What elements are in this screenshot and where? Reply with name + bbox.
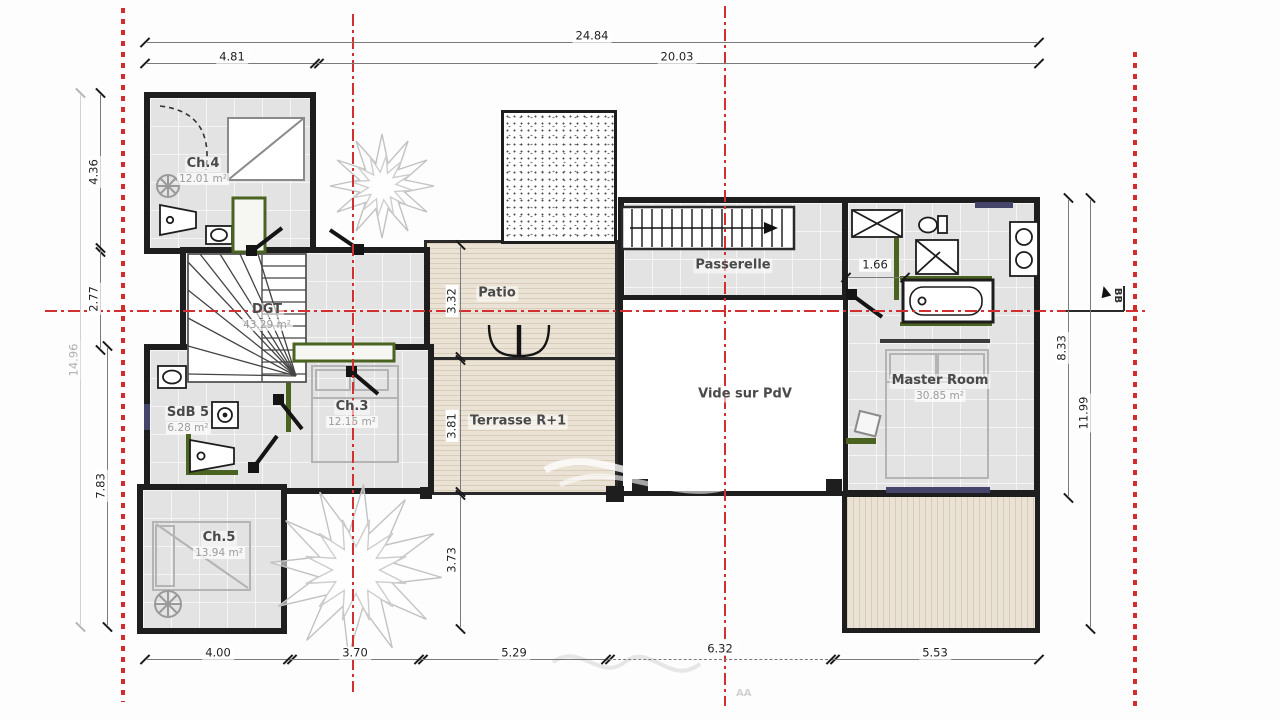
room-label-ch5: Ch.5 13.94 m² xyxy=(193,531,245,559)
partition-green xyxy=(900,276,992,280)
room-ch5-block xyxy=(137,484,287,634)
room-label-dgt: DGT 43.29 m² xyxy=(241,303,293,331)
dim-line-bath xyxy=(848,277,903,278)
section-line xyxy=(1123,286,1125,311)
window-glazing xyxy=(975,202,1013,208)
dim-right-2: 11.99 xyxy=(1078,394,1091,433)
partition-green xyxy=(186,434,191,474)
section-marker-bb: BB xyxy=(1112,288,1123,303)
room-label-patio: Patio xyxy=(476,287,518,302)
room-name: Passerelle xyxy=(693,259,772,274)
room-area: 12.15 m² xyxy=(326,416,378,428)
room-ch4-block xyxy=(144,92,316,254)
room-area: 13.94 m² xyxy=(193,547,245,559)
room-label-passerelle: Passerelle xyxy=(693,259,772,274)
dim-patio-width: 3.32 xyxy=(446,285,459,317)
right-wing-block xyxy=(842,197,1040,496)
room-area: 6.28 m² xyxy=(165,422,210,434)
room-label-terrasse: Terrasse R+1 xyxy=(468,415,568,430)
room-name: Ch.4 xyxy=(185,157,222,172)
room-name: DGT xyxy=(250,303,284,318)
dim-right-1: 8.33 xyxy=(1056,332,1069,364)
room-name: Ch.5 xyxy=(201,531,238,546)
wall-post xyxy=(606,486,624,502)
axis-vertical-right xyxy=(1133,52,1137,712)
dim-left-2: 2.77 xyxy=(88,283,101,315)
dim-left-1: 4.36 xyxy=(88,156,101,188)
dim-line-bottom-4 xyxy=(608,659,833,660)
wall-post xyxy=(420,487,432,499)
room-label-sdb5: SdB 5 6.28 m² xyxy=(165,406,211,434)
dim-left-total: 14.96 xyxy=(68,341,81,380)
partition-green xyxy=(186,470,238,475)
room-name: Terrasse R+1 xyxy=(468,415,568,430)
dim-top-main: 20.03 xyxy=(658,51,697,64)
room-name: Vide sur PdV xyxy=(696,388,794,403)
dim-bottom-2: 3.70 xyxy=(339,647,371,660)
axis-vertical-left xyxy=(121,8,125,702)
dim-terrace-width: 3.81 xyxy=(446,410,459,442)
dim-bottom-4: 6.32 xyxy=(704,643,736,656)
axis-vertical-mid-left xyxy=(352,14,354,692)
dim-lower-gap: 3.73 xyxy=(446,544,459,576)
dim-bottom-3: 5.29 xyxy=(498,647,530,660)
room-label-ch4: Ch.4 12.01 m² xyxy=(177,157,229,185)
dim-top-left: 4.81 xyxy=(216,51,248,64)
room-area: 12.01 m² xyxy=(177,173,229,185)
room-name: Master Room xyxy=(890,374,991,389)
dim-bath-width: 1.66 xyxy=(859,259,891,272)
dim-top-total: 24.84 xyxy=(573,30,612,43)
wall-post xyxy=(826,479,842,494)
balcony-deck xyxy=(842,492,1040,633)
window-glazing xyxy=(144,404,150,430)
room-name: Patio xyxy=(476,287,518,302)
dim-line-terrace xyxy=(460,362,461,490)
gravel-patch xyxy=(501,110,617,244)
room-area: 30.85 m² xyxy=(914,390,966,402)
partition-green xyxy=(894,238,899,300)
dim-line-lower xyxy=(460,497,461,627)
room-name: SdB 5 xyxy=(165,406,211,421)
partition-green xyxy=(846,438,876,444)
dim-bottom-5: 5.53 xyxy=(919,647,951,660)
room-label-vide: Vide sur PdV xyxy=(696,388,794,403)
dim-left-3: 7.83 xyxy=(95,470,108,502)
partition-green xyxy=(286,348,291,432)
room-label-ch3: Ch.3 12.15 m² xyxy=(326,400,378,428)
partition-green xyxy=(900,322,992,326)
room-name: Ch.3 xyxy=(334,400,371,415)
axis-horizontal-main xyxy=(45,310,1145,312)
room-dgt-block xyxy=(180,247,430,350)
room-label-master: Master Room 30.85 m² xyxy=(890,374,991,402)
dim-bottom-1: 4.00 xyxy=(202,647,234,660)
window-glazing xyxy=(886,487,990,493)
passerelle-block xyxy=(618,197,848,301)
wall-post xyxy=(632,479,648,494)
section-line xyxy=(1066,310,1124,312)
dim-line-patio xyxy=(460,247,461,355)
axis-vertical-mid-right xyxy=(724,6,726,706)
section-arrow-icon xyxy=(1099,285,1112,298)
section-marker-aa: AA xyxy=(736,688,751,699)
floor-plan: BB AA 24.84 4.81 20.03 4.36 2.77 7.83 14… xyxy=(0,0,1280,720)
room-area: 43.29 m² xyxy=(241,319,293,331)
